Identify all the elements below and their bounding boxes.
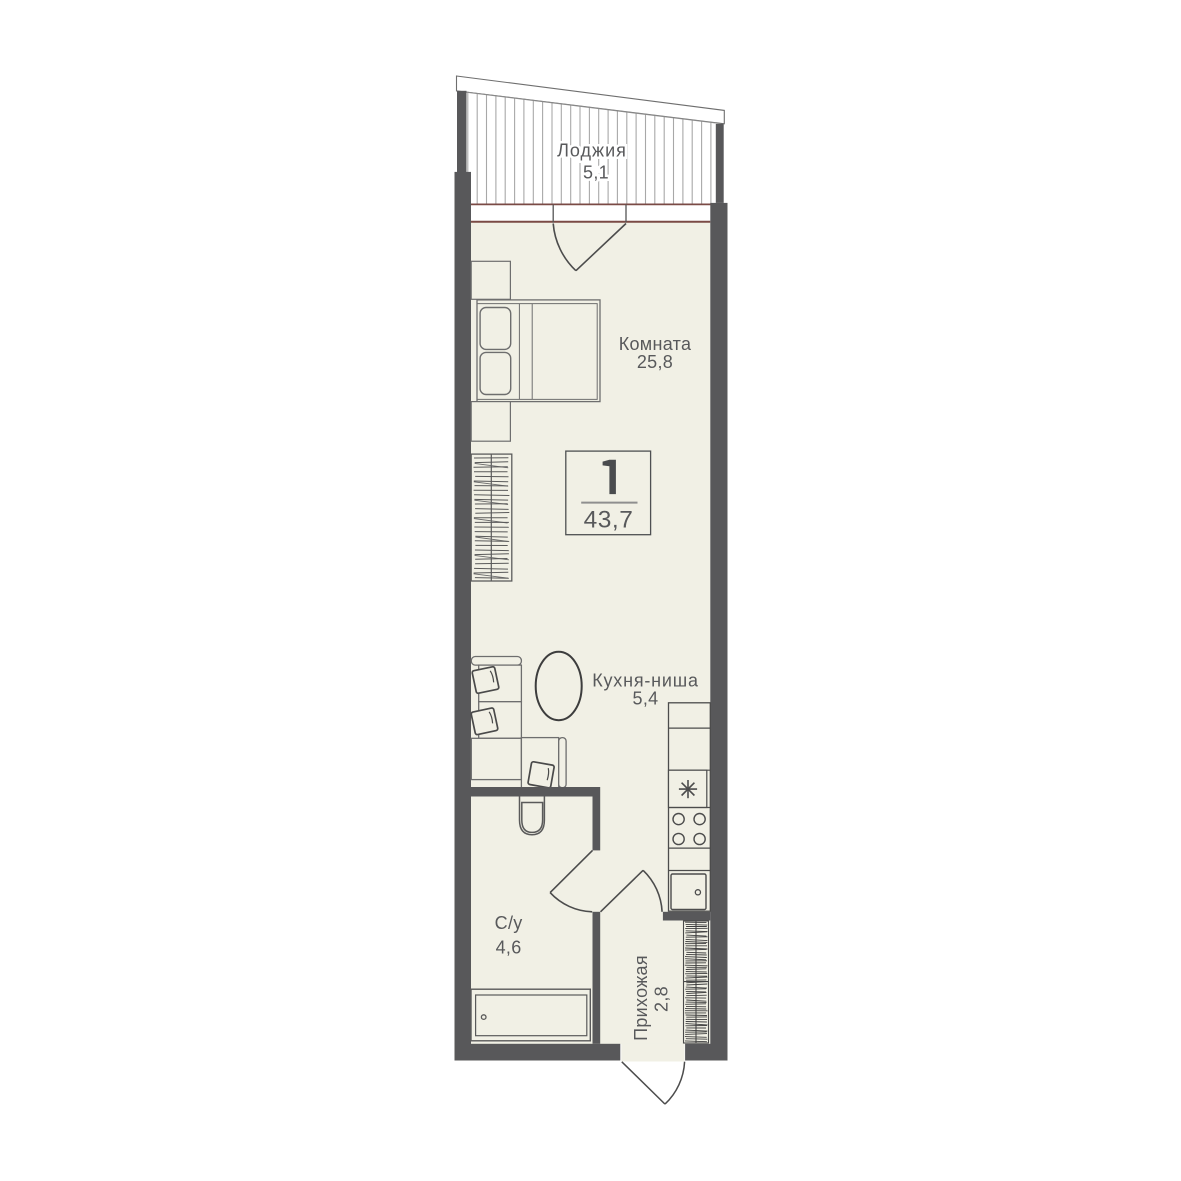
svg-text:С/у: С/у (495, 913, 523, 933)
svg-text:4,6: 4,6 (496, 938, 522, 958)
svg-text:Лоджия: Лоджия (557, 141, 627, 161)
svg-text:5,4: 5,4 (633, 689, 659, 709)
svg-text:Кухня-ниша: Кухня-ниша (592, 671, 699, 691)
svg-text:5,1: 5,1 (583, 163, 609, 183)
svg-text:25,8: 25,8 (637, 352, 673, 372)
svg-text:Прихожая: Прихожая (631, 955, 651, 1041)
svg-text:43,7: 43,7 (584, 507, 634, 534)
svg-text:2,8: 2,8 (652, 986, 672, 1012)
